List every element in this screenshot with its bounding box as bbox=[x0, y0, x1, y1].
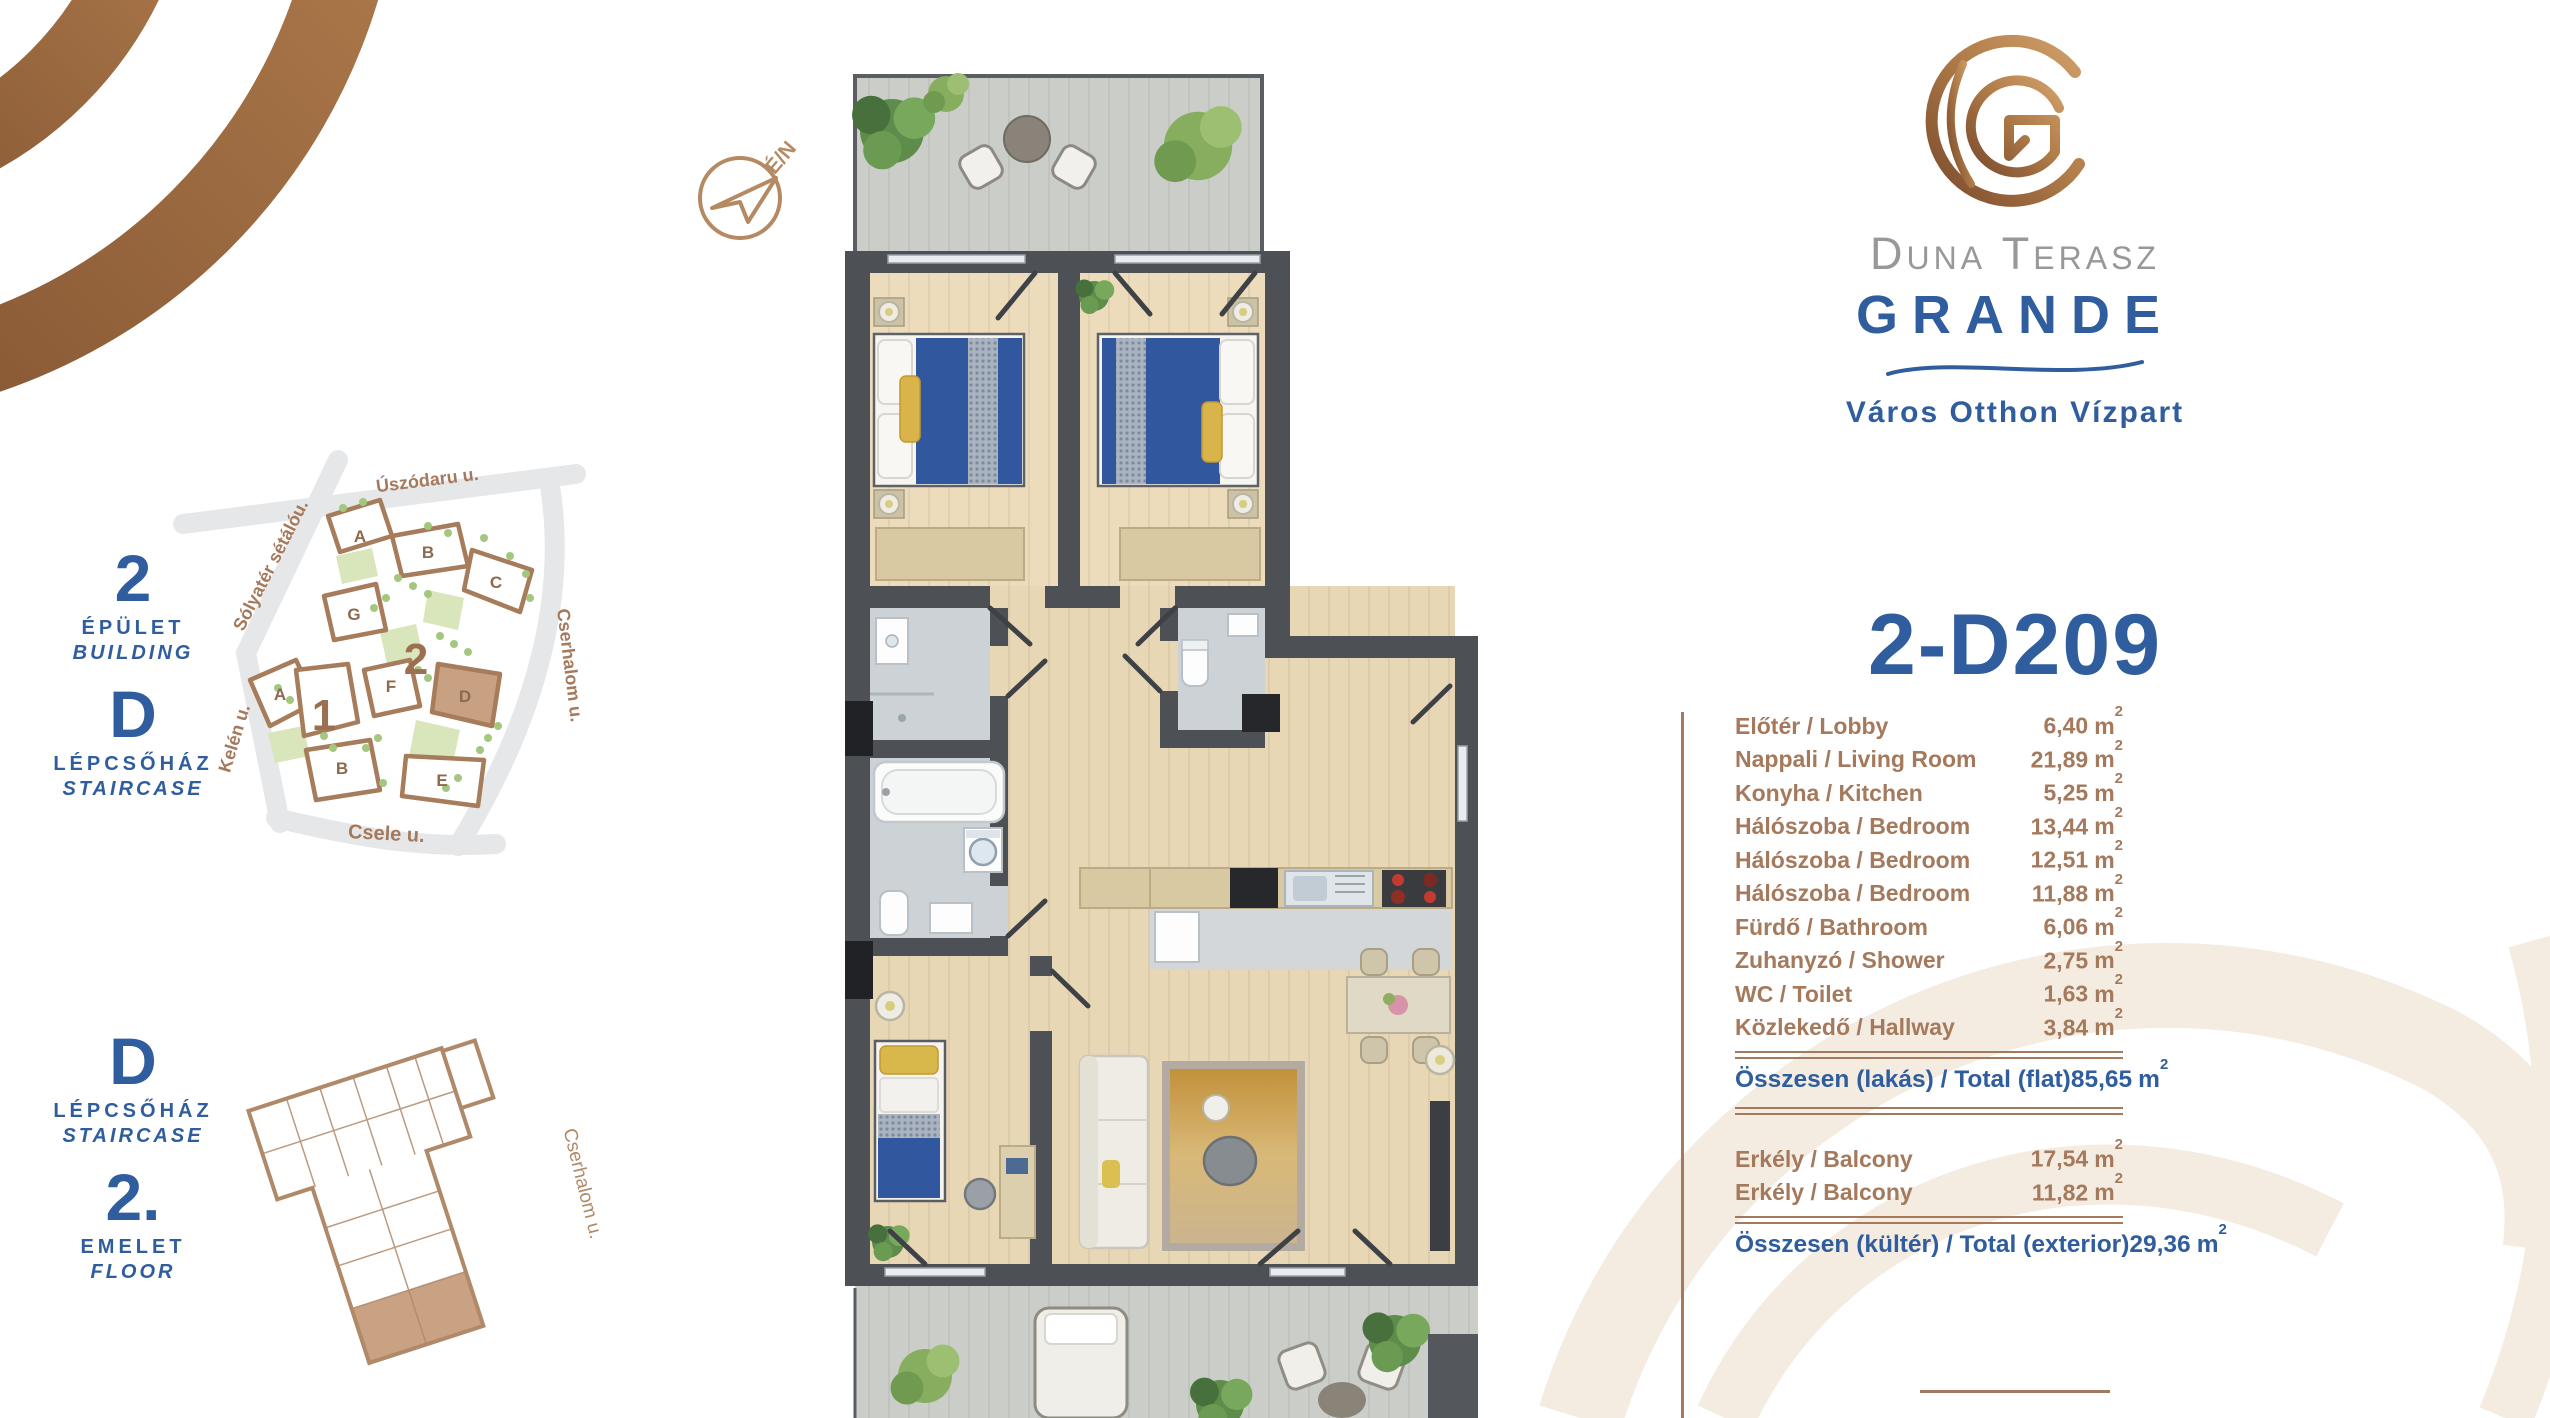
unit-sup: 2 bbox=[2115, 737, 2123, 754]
room-label: Közlekedő / Hallway bbox=[1735, 1014, 1955, 1041]
map-label-block-b2: B bbox=[422, 543, 434, 562]
site-map: A B C G F D E A B 2 1 Úszódaru u. Sólyat… bbox=[128, 438, 608, 883]
room-area: 5,25 bbox=[2043, 780, 2088, 806]
room-area: 13,44 bbox=[2031, 813, 2089, 839]
unit-m: m bbox=[2094, 813, 2114, 839]
balcony-bottom bbox=[855, 1286, 1478, 1418]
map-building1-number: 1 bbox=[312, 691, 336, 740]
map-building2-number: 2 bbox=[404, 635, 428, 684]
table-row: Zuhanyzó / Shower 2,75m2 bbox=[1735, 947, 2123, 981]
table-row: Konyha / Kitchen 5,25m2 bbox=[1735, 779, 2123, 813]
total-flat-area: 85,65 bbox=[2071, 1066, 2132, 1093]
unit-m: m bbox=[2138, 1066, 2160, 1093]
room-label: WC / Toilet bbox=[1735, 981, 1852, 1008]
accent-pillow bbox=[1202, 402, 1222, 462]
total-exterior-label: Összesen (kültér) / Total (exterior) bbox=[1735, 1231, 2129, 1259]
toilet bbox=[880, 891, 908, 935]
map-label-block-c2: C bbox=[490, 573, 502, 592]
staircase-label-en-2: STAIRCASE bbox=[38, 1125, 228, 1148]
unit-sup: 2 bbox=[2115, 1170, 2123, 1187]
floor-number: 2. bbox=[38, 1164, 228, 1230]
table-row: Hálószoba / Bedroom 13,44m2 bbox=[1735, 813, 2123, 847]
sideboard bbox=[1080, 868, 1150, 908]
unit-sup: 2 bbox=[2115, 804, 2123, 821]
side-table bbox=[1203, 1095, 1229, 1121]
map-label-block-e2: E bbox=[436, 771, 447, 790]
pillow bbox=[1220, 340, 1254, 404]
accent-pillow bbox=[900, 376, 920, 442]
unit-m: m bbox=[2094, 780, 2114, 806]
compass-label: É/N bbox=[761, 138, 801, 179]
table-row: WC / Toilet 1,63m2 bbox=[1735, 980, 2123, 1014]
street-kelen: Kelén u. bbox=[214, 702, 254, 775]
total-exterior-row: Összesen (kültér) / Total (exterior) 29,… bbox=[1735, 1230, 2123, 1268]
floor-plan bbox=[830, 46, 1490, 1418]
planter bbox=[1428, 1334, 1478, 1418]
thumbnail-street-label: Cserhalom u. bbox=[558, 1126, 606, 1241]
dining-chair bbox=[1361, 949, 1387, 975]
table-divider bbox=[1735, 1216, 2123, 1224]
room-label: Előtér / Lobby bbox=[1735, 713, 1888, 740]
street-csele: Csele u. bbox=[347, 821, 425, 847]
room-label: Hálószoba / Bedroom bbox=[1735, 847, 1970, 874]
balcony-area: 17,54 bbox=[2031, 1146, 2089, 1172]
floor-plate-thumbnail: Cserhalom u. bbox=[225, 985, 625, 1405]
table-divider bbox=[1735, 1051, 2123, 1059]
terrace-top bbox=[852, 73, 1262, 253]
staircase-letter-2: D bbox=[38, 1028, 228, 1094]
wardrobe bbox=[876, 528, 1024, 580]
unit-m: m bbox=[2094, 981, 2114, 1007]
sink bbox=[1228, 614, 1258, 636]
brand-name-line2: GRANDE bbox=[1765, 284, 2265, 346]
map-label-block-b1: B bbox=[336, 759, 348, 778]
room-label: Nappali / Living Room bbox=[1735, 746, 1977, 773]
unit-sup: 2 bbox=[2115, 871, 2123, 888]
room-area: 2,75 bbox=[2043, 947, 2088, 973]
room-area: 21,89 bbox=[2031, 746, 2089, 772]
coffee-table bbox=[1204, 1137, 1256, 1185]
balcony-label: Erkély / Balcony bbox=[1735, 1179, 1913, 1206]
sofa-pillow bbox=[1102, 1160, 1120, 1188]
balcony-row: Erkély / Balcony 11,82m2 bbox=[1735, 1179, 2123, 1213]
unit-sup: 2 bbox=[2115, 904, 2123, 921]
unit-m: m bbox=[2094, 1146, 2114, 1172]
unit-m: m bbox=[2197, 1231, 2219, 1258]
unit-m: m bbox=[2094, 1179, 2114, 1205]
pillow bbox=[1220, 414, 1254, 478]
brand-wave-icon bbox=[1880, 354, 2150, 382]
total-exterior-area: 29,36 bbox=[2129, 1231, 2190, 1258]
balcony-label: Erkély / Balcony bbox=[1735, 1146, 1913, 1173]
brand-logo-icon bbox=[1915, 28, 2115, 228]
unit-m: m bbox=[2094, 914, 2114, 940]
map-label-block-a2: A bbox=[354, 527, 366, 546]
unit-sup: 2 bbox=[2115, 1005, 2123, 1022]
unit-sup: 2 bbox=[2115, 770, 2123, 787]
total-flat-row: Összesen (lakás) / Total (flat) 85,65m2 bbox=[1735, 1065, 2123, 1103]
room-area: 6,40 bbox=[2043, 713, 2088, 739]
unit-sup: 2 bbox=[2115, 703, 2123, 720]
dining-chair bbox=[1413, 949, 1439, 975]
total-flat-label: Összesen (lakás) / Total (flat) bbox=[1735, 1066, 2071, 1094]
room-area: 3,84 bbox=[2043, 1014, 2088, 1040]
map-green-areas bbox=[268, 548, 464, 768]
room-label: Konyha / Kitchen bbox=[1735, 780, 1923, 807]
staircase-label-hu-2: LÉPCSŐHÁZ bbox=[38, 1100, 228, 1123]
fridge bbox=[1155, 912, 1199, 962]
tv-console bbox=[1430, 1101, 1450, 1251]
unit-title: 2-D209 bbox=[1765, 596, 2265, 695]
brochure-page: É/N 2 ÉPÜLET BUILDING D LÉPCSŐHÁZ STAIRC… bbox=[0, 0, 2550, 1418]
room-label: Zuhanyzó / Shower bbox=[1735, 947, 1945, 974]
room-area: 1,63 bbox=[2043, 981, 2088, 1007]
room-label: Hálószoba / Bedroom bbox=[1735, 880, 1970, 907]
room-label: Fürdő / Bathroom bbox=[1735, 914, 1928, 941]
balcony-area: 11,82 bbox=[2032, 1179, 2088, 1205]
unit-m: m bbox=[2094, 947, 2114, 973]
sink bbox=[930, 903, 972, 933]
thumbnail-outline bbox=[248, 1038, 559, 1375]
unit-m: m bbox=[2094, 713, 2114, 739]
room-area: 6,06 bbox=[2043, 914, 2088, 940]
table-row: Előtér / Lobby 6,40m2 bbox=[1735, 712, 2123, 746]
dining-chair bbox=[1361, 1037, 1387, 1063]
room-label: Hálószoba / Bedroom bbox=[1735, 813, 1970, 840]
table-row: Nappali / Living Room 21,89m2 bbox=[1735, 746, 2123, 780]
stove bbox=[1382, 870, 1446, 907]
unit-sup: 2 bbox=[2115, 1136, 2123, 1153]
balcony-row: Erkély / Balcony 17,54m2 bbox=[1735, 1145, 2123, 1179]
unit-m: m bbox=[2094, 746, 2114, 772]
area-table: Előtér / Lobby 6,40m2 Nappali / Living R… bbox=[1735, 712, 2123, 1268]
accent-pillow bbox=[880, 1046, 938, 1074]
unit-sup: 2 bbox=[2218, 1221, 2226, 1238]
brand-name-line1: Duna Terasz bbox=[1765, 228, 2265, 280]
map-label-block-d2: D bbox=[459, 687, 471, 706]
compass-icon: É/N bbox=[690, 138, 810, 253]
table-row: Közlekedő / Hallway 3,84m2 bbox=[1735, 1014, 2123, 1048]
street-cserhalom: Cserhalom u. bbox=[553, 607, 587, 723]
footer-rule bbox=[1920, 1390, 2110, 1393]
unit-sup: 2 bbox=[2160, 1056, 2168, 1073]
corner-arcs-decoration bbox=[0, 0, 540, 430]
map-label-block-g2: G bbox=[347, 605, 360, 624]
terrace-table bbox=[1004, 116, 1050, 162]
kitchen-cabinet-dark bbox=[1230, 868, 1278, 908]
room-area: 12,51 bbox=[2031, 847, 2089, 873]
table-divider bbox=[1735, 1107, 2123, 1115]
wardrobe bbox=[1120, 528, 1260, 580]
brand-block: Duna Terasz GRANDE Város Otthon Vízpart bbox=[1765, 28, 2265, 430]
staircase-floor-labels: D LÉPCSŐHÁZ STAIRCASE 2. EMELET FLOOR bbox=[38, 1028, 228, 1284]
table-row: Hálószoba / Bedroom 12,51m2 bbox=[1735, 846, 2123, 880]
unit-m: m bbox=[2094, 1014, 2114, 1040]
balcony-table bbox=[1318, 1382, 1366, 1418]
floor-label-hu: EMELET bbox=[38, 1236, 228, 1259]
brand-tagline: Város Otthon Vízpart bbox=[1765, 396, 2265, 430]
map-label-block-f2: F bbox=[386, 677, 396, 696]
floor-label-en: FLOOR bbox=[38, 1261, 228, 1284]
panel-divider-line bbox=[1681, 712, 1684, 1418]
unit-sup: 2 bbox=[2115, 938, 2123, 955]
room-area: 11,88 bbox=[2032, 880, 2088, 906]
desk-chair bbox=[965, 1179, 995, 1209]
unit-m: m bbox=[2094, 880, 2114, 906]
unit-sup: 2 bbox=[2115, 837, 2123, 854]
table-row: Hálószoba / Bedroom 11,88m2 bbox=[1735, 880, 2123, 914]
unit-sup: 2 bbox=[2115, 971, 2123, 988]
unit-m: m bbox=[2094, 847, 2114, 873]
bedroom-1 bbox=[874, 298, 1024, 580]
table-row: Fürdő / Bathroom 6,06m2 bbox=[1735, 913, 2123, 947]
map-label-block-a1: A bbox=[274, 685, 286, 704]
